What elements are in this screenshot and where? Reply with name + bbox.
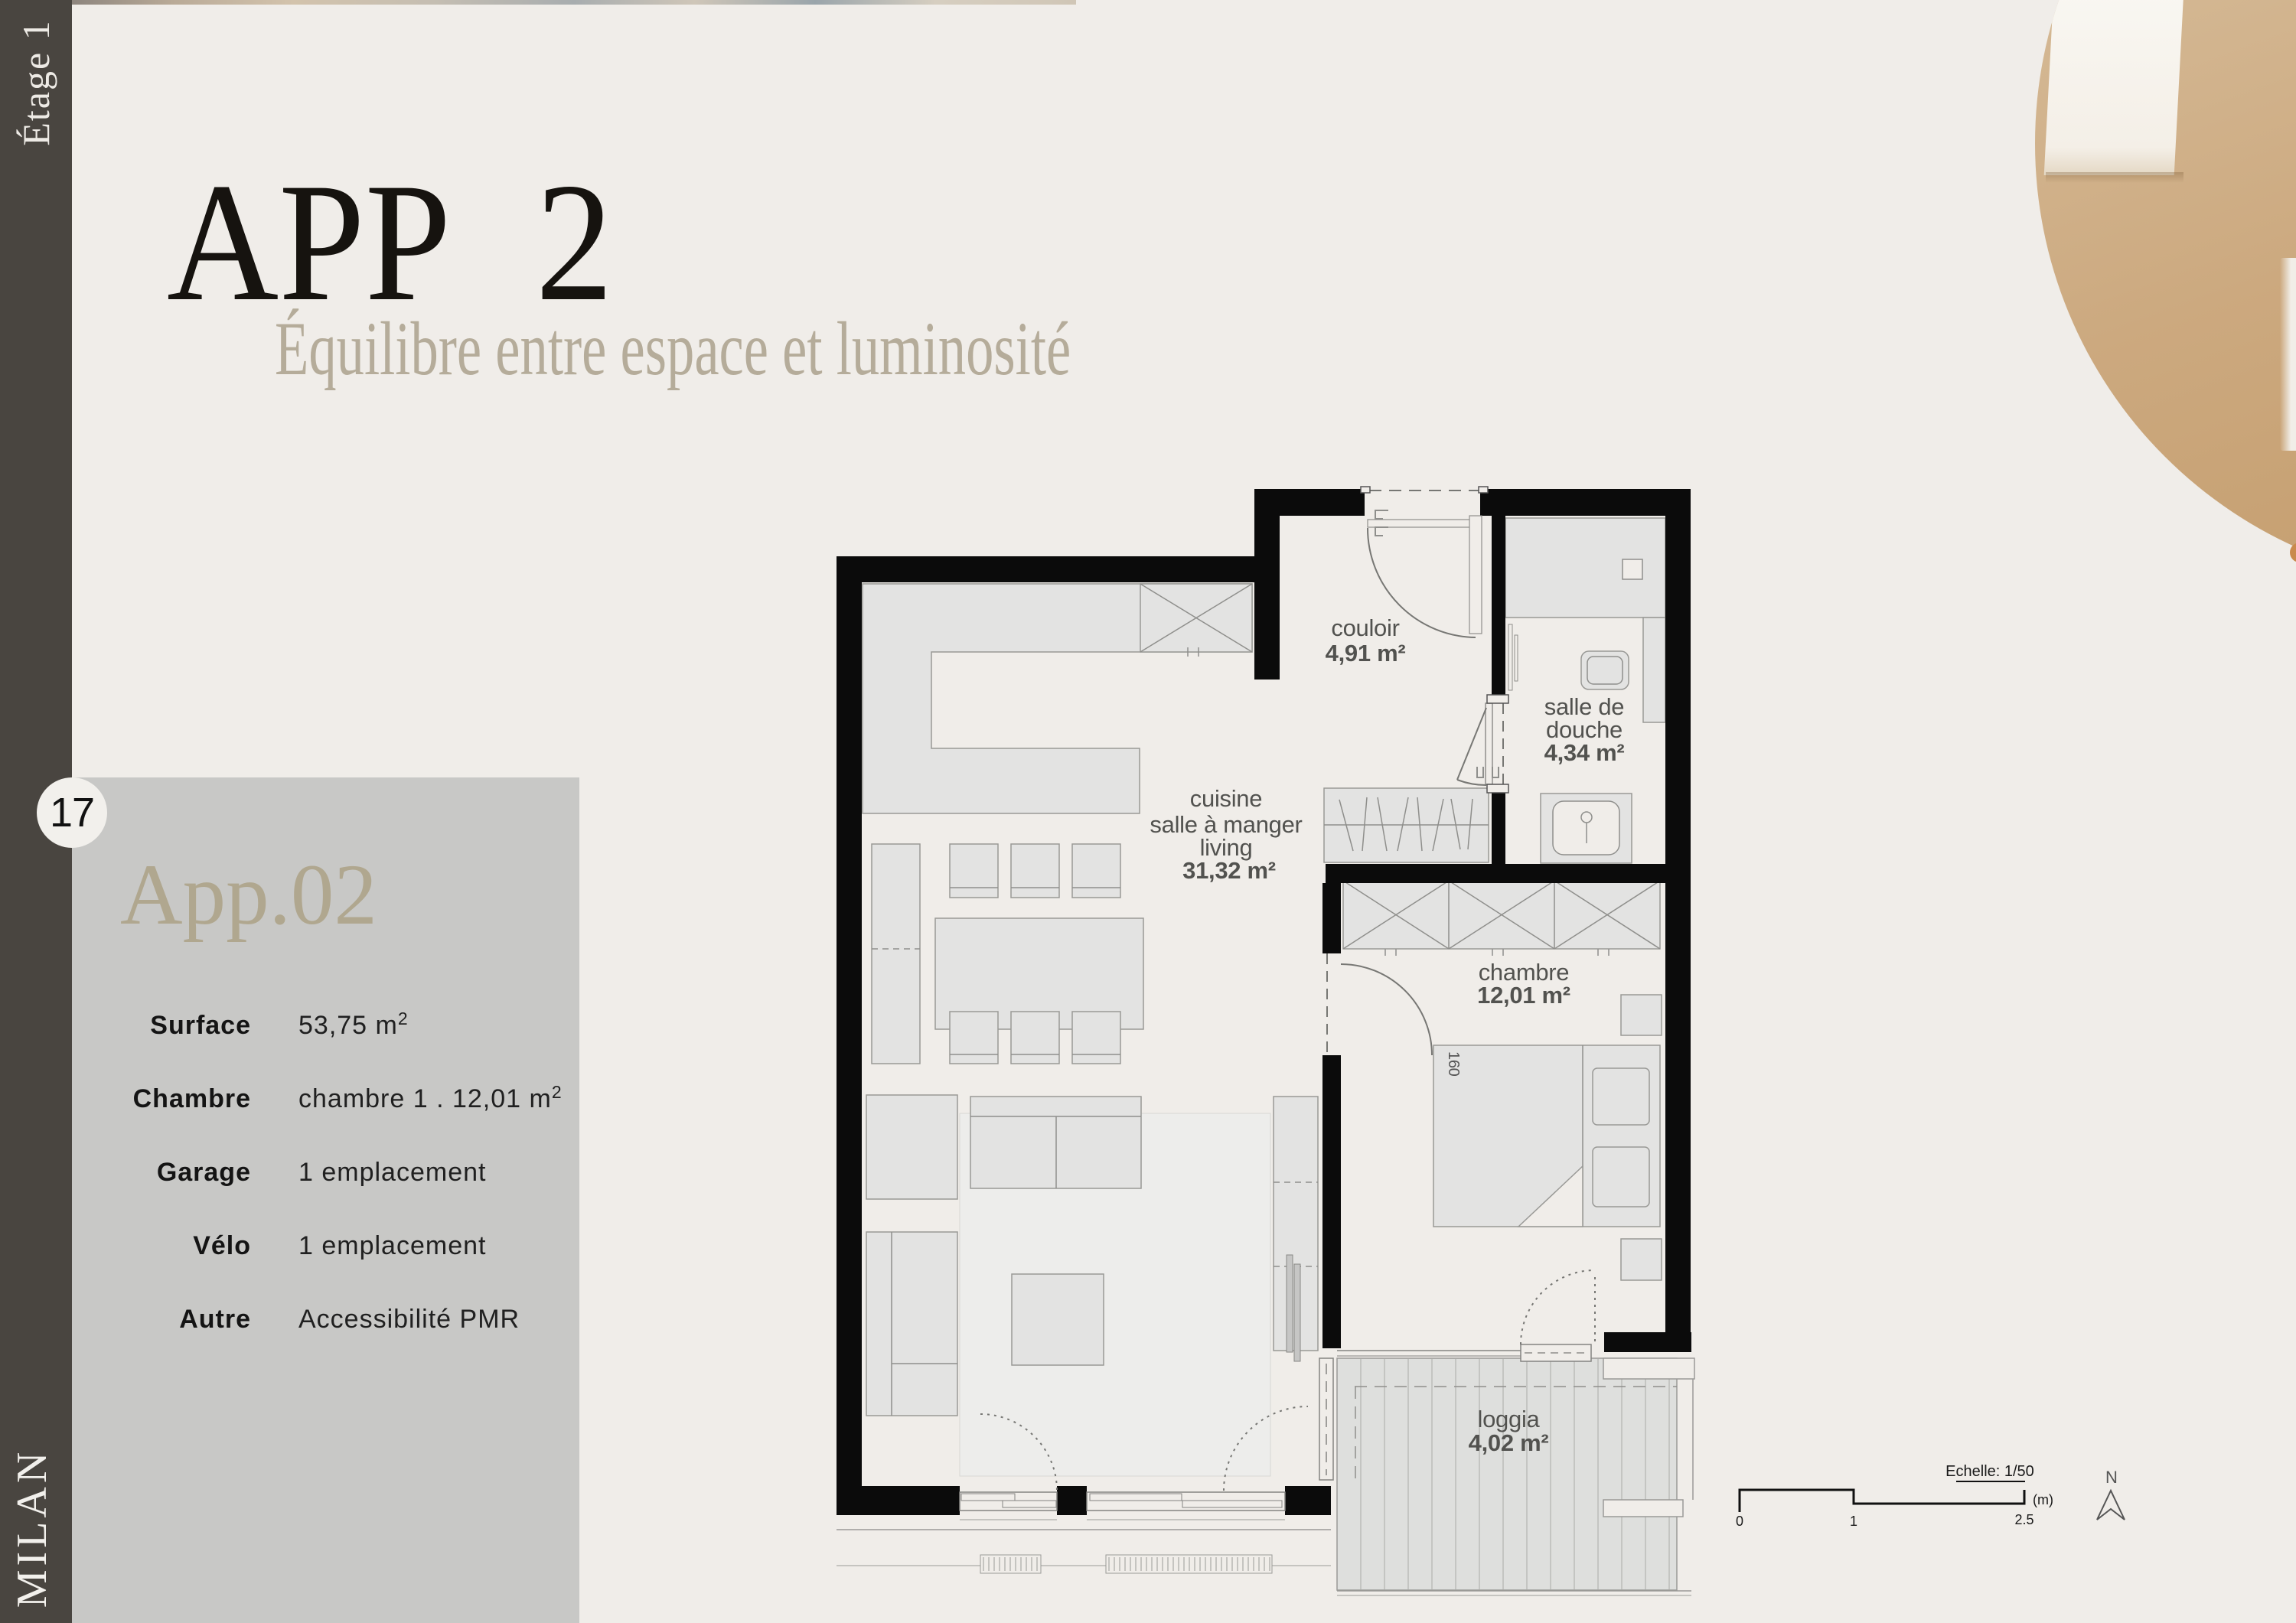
svg-text:31,32 m²: 31,32 m² (1182, 857, 1276, 884)
svg-text:12,01 m²: 12,01 m² (1477, 982, 1570, 1009)
svg-text:4,91 m²: 4,91 m² (1326, 640, 1406, 666)
svg-text:Echelle: 1/50: Echelle: 1/50 (1945, 1463, 2034, 1480)
svg-text:2.5: 2.5 (2014, 1512, 2033, 1527)
svg-text:loggia: loggia (1478, 1406, 1541, 1432)
svg-text:4,02 m²: 4,02 m² (1469, 1429, 1549, 1456)
svg-text:cuisine: cuisine (1190, 785, 1262, 812)
svg-text:1: 1 (1850, 1514, 1857, 1529)
svg-text:0: 0 (1736, 1514, 1743, 1529)
svg-text:(m): (m) (2033, 1492, 2053, 1507)
svg-text:couloir: couloir (1331, 614, 1399, 641)
svg-text:160: 160 (1445, 1051, 1462, 1077)
svg-text:4,34 m²: 4,34 m² (1544, 739, 1625, 766)
svg-text:N: N (2105, 1468, 2118, 1487)
